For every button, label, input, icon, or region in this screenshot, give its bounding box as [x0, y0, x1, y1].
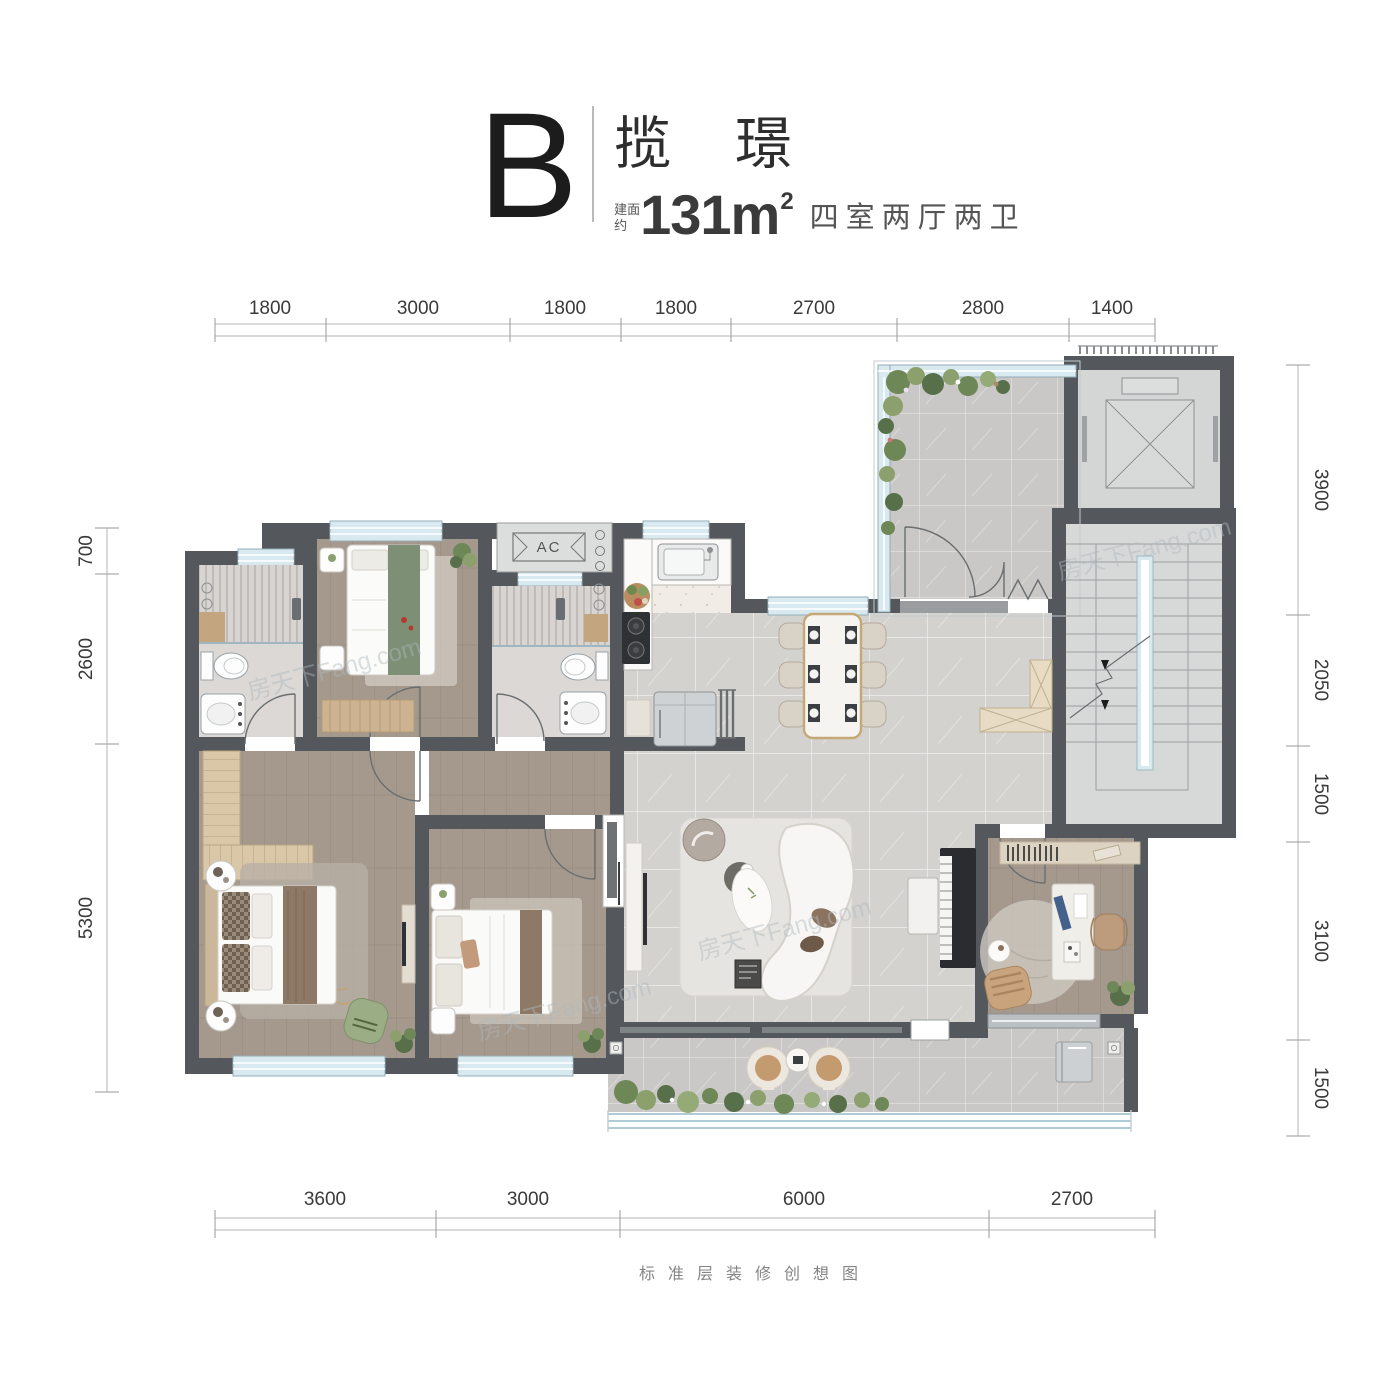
shower-fixture	[292, 598, 301, 620]
bed	[432, 910, 552, 1014]
dim-label: 2700	[793, 298, 835, 319]
dim-label: 3600	[304, 1189, 346, 1210]
dim-bottom-lines	[215, 1218, 1155, 1230]
dim-label: 1500	[1310, 1067, 1331, 1109]
slider-panel	[607, 822, 617, 898]
toilet	[561, 652, 608, 680]
swivel-chair	[683, 819, 725, 861]
pillow	[436, 916, 462, 958]
window-bedroom2-top	[330, 521, 442, 541]
dim-label: 2600	[76, 638, 97, 680]
dim-label: 2050	[1310, 659, 1331, 701]
nightstand-plant	[328, 554, 336, 562]
dimension-left: 700 2600 5300	[76, 528, 119, 1092]
kitchen-sink	[658, 544, 718, 580]
piano-bench	[908, 878, 938, 934]
washer	[1056, 1042, 1092, 1082]
dim-label: 1800	[544, 298, 586, 319]
window-kitchen-top	[643, 521, 709, 541]
sliding-door-hallway	[603, 815, 624, 907]
shoe-cabinet-vertical	[1030, 660, 1052, 710]
dim-label: 3900	[1310, 469, 1331, 511]
desk-chair	[1091, 914, 1127, 950]
nightstand-round	[206, 1001, 236, 1031]
shower-fixture	[556, 598, 565, 620]
desk	[1052, 884, 1094, 980]
floor-drain	[1108, 1042, 1120, 1054]
dim-label: 3100	[1310, 920, 1331, 962]
entry-step	[896, 601, 1008, 613]
study-balcony-slider	[988, 1014, 1100, 1028]
window-bedroom3-bottom	[458, 1056, 573, 1076]
dim-label: 1800	[655, 298, 697, 319]
stove	[622, 612, 650, 664]
window-master-bottom	[233, 1056, 385, 1076]
wall-tv-panel	[402, 905, 415, 983]
elevator-panel	[1122, 378, 1178, 394]
ac-label: AC	[537, 539, 562, 556]
paper	[1074, 894, 1087, 918]
floor-drain	[610, 1042, 622, 1054]
nightstand-round	[206, 861, 236, 891]
elevator-rail	[1082, 416, 1087, 462]
vegetable-basket	[624, 583, 650, 609]
dim-bottom-ticks	[215, 1210, 1155, 1238]
balcony-railing	[608, 1110, 1131, 1132]
dim-label: 5300	[76, 897, 97, 939]
dim-label: 1400	[1091, 298, 1133, 319]
side-table	[735, 960, 761, 988]
elevator-cab	[1106, 400, 1194, 488]
cup	[998, 945, 1004, 951]
piano	[940, 848, 976, 968]
dimension-right: 3900 2050 1500 3100 1500	[1286, 365, 1331, 1136]
shoe-cabinet-horizontal	[980, 708, 1052, 732]
patio-table	[786, 1048, 810, 1072]
hallway-floor	[429, 751, 610, 815]
elevator-louver	[1078, 346, 1218, 354]
dim-label: 700	[76, 535, 97, 567]
bed-runner	[520, 910, 542, 1014]
pillow	[252, 946, 272, 990]
dim-label: 6000	[783, 1189, 825, 1210]
bath-mat	[199, 612, 225, 642]
window-bathleft-top	[238, 549, 294, 567]
bath-mat	[584, 614, 608, 642]
nightstand	[431, 1008, 455, 1034]
dim-label: 2700	[1051, 1189, 1093, 1210]
dimension-top: 1800 3000 1800 1800 2700 2800 1400	[215, 298, 1155, 342]
sink-vanity	[201, 694, 245, 734]
bookshelf	[1000, 842, 1140, 864]
ac-platform: AC	[497, 523, 612, 572]
elevator-rail	[1213, 416, 1218, 462]
tv	[643, 873, 647, 945]
room-dining	[779, 614, 886, 738]
floor-plan-canvas: 1800 3000 1800 1800 2700 2800 1400 3600 …	[0, 0, 1400, 1400]
terrace-floor	[890, 377, 1073, 599]
toilet	[201, 652, 248, 680]
pillow	[222, 944, 250, 992]
dresser	[322, 700, 414, 732]
dim-label: 1800	[249, 298, 291, 319]
window-living-top	[768, 597, 868, 615]
patio-chair	[747, 1047, 789, 1090]
plan-caption: 标准层装修创想图	[110, 1260, 1400, 1284]
pillow	[436, 964, 462, 1006]
patio-chair	[808, 1047, 850, 1090]
dim-label: 3000	[507, 1189, 549, 1210]
stair-handrail-core	[1141, 560, 1149, 766]
desk-items	[1064, 942, 1080, 962]
dim-top-ticks	[215, 318, 1155, 342]
floorplan-page: B 揽 璟 建面 约 131m 2 四室两厅两卫	[0, 0, 1400, 1400]
sink-vanity	[560, 692, 606, 734]
kitchen-mat	[626, 700, 650, 736]
dim-label: 3000	[397, 298, 439, 319]
dim-label: 2800	[962, 298, 1004, 319]
side-table	[988, 940, 1010, 962]
pillow	[252, 894, 272, 938]
fridge	[654, 692, 716, 746]
radiator	[718, 690, 736, 738]
nightstand-plant	[439, 890, 447, 898]
dim-top-lines	[215, 324, 1155, 336]
bed	[205, 884, 336, 1006]
dim-label: 1500	[1310, 773, 1331, 815]
headboard	[205, 884, 218, 1006]
dimension-bottom: 3600 3000 6000 2700	[215, 1189, 1155, 1238]
louver-teeth	[1080, 346, 1213, 354]
pillow	[222, 892, 250, 940]
